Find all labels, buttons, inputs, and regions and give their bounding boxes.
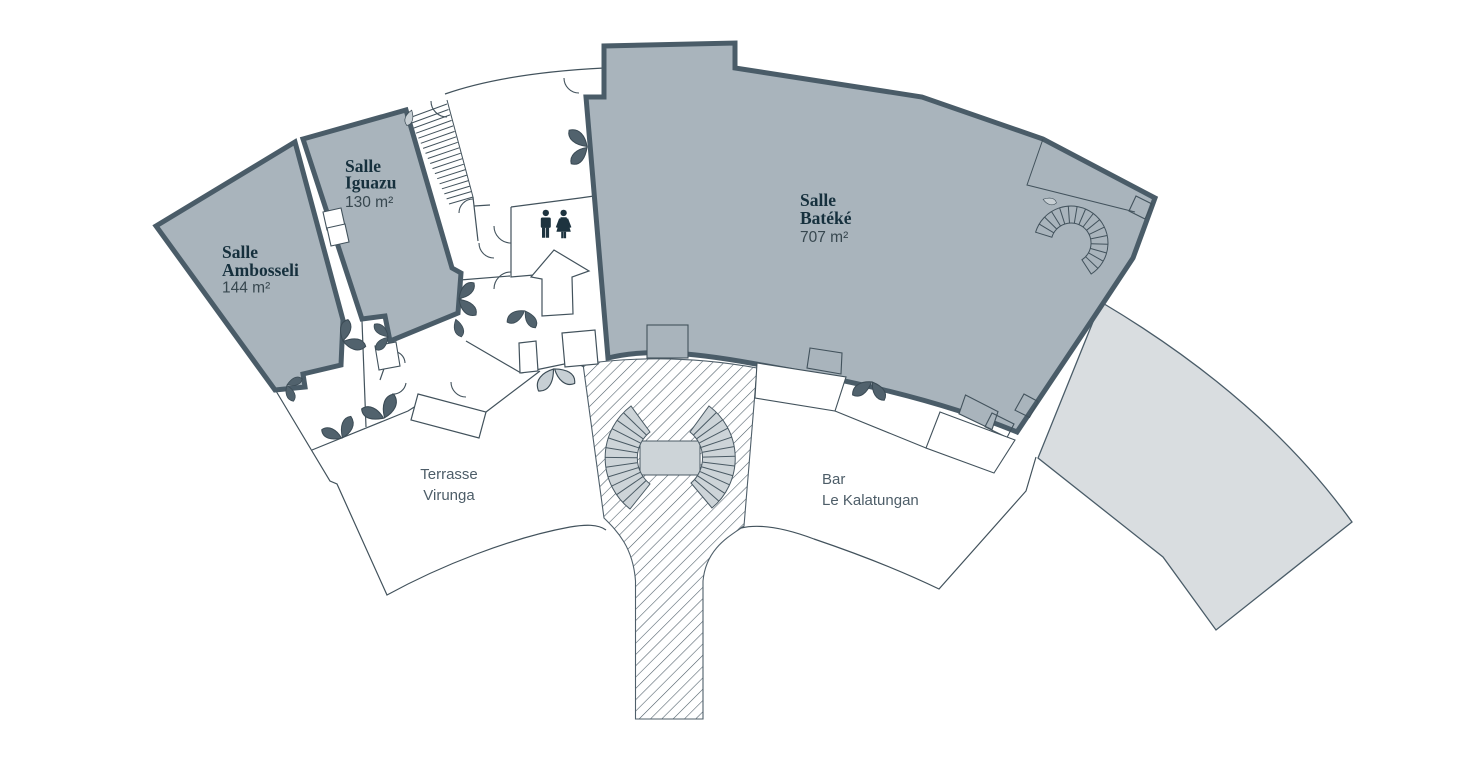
svg-text:Terrasse: Terrasse bbox=[420, 466, 478, 483]
svg-text:Batéké: Batéké bbox=[800, 208, 852, 228]
svg-text:Salle: Salle bbox=[800, 190, 836, 210]
svg-text:Ambosseli: Ambosseli bbox=[222, 260, 299, 280]
svg-text:Iguazu: Iguazu bbox=[345, 173, 397, 193]
svg-text:Salle: Salle bbox=[222, 242, 258, 262]
svg-text:Bar: Bar bbox=[822, 471, 845, 488]
svg-text:Le Kalatungan: Le Kalatungan bbox=[822, 492, 919, 509]
svg-text:130 m²: 130 m² bbox=[345, 194, 393, 211]
svg-text:144 m²: 144 m² bbox=[222, 280, 270, 297]
svg-text:707 m²: 707 m² bbox=[800, 229, 848, 246]
svg-text:Virunga: Virunga bbox=[423, 487, 475, 504]
